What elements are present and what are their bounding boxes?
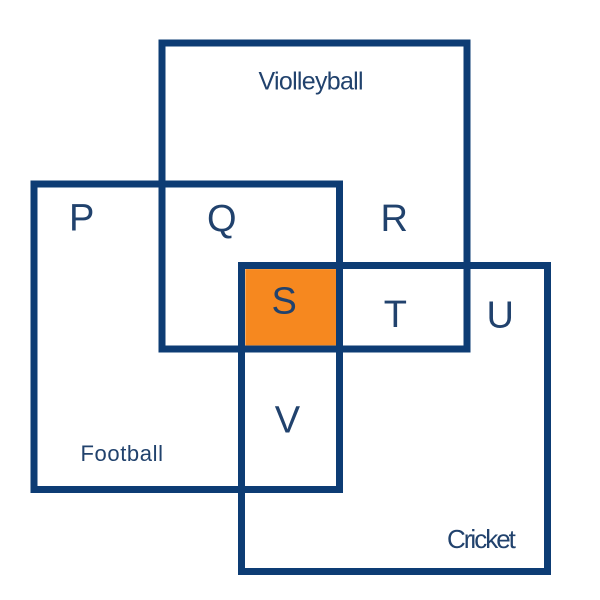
svg-text:Cricket: Cricket	[447, 524, 517, 554]
svg-text:S: S	[272, 281, 297, 323]
svg-text:Football: Football	[81, 441, 164, 466]
svg-text:R: R	[381, 198, 408, 240]
svg-text:Q: Q	[207, 198, 237, 240]
svg-text:U: U	[487, 295, 514, 337]
svg-text:T: T	[384, 294, 407, 336]
svg-text:Violleyball: Violleyball	[258, 68, 362, 96]
svg-text:P: P	[69, 198, 94, 240]
svg-text:V: V	[275, 400, 301, 442]
